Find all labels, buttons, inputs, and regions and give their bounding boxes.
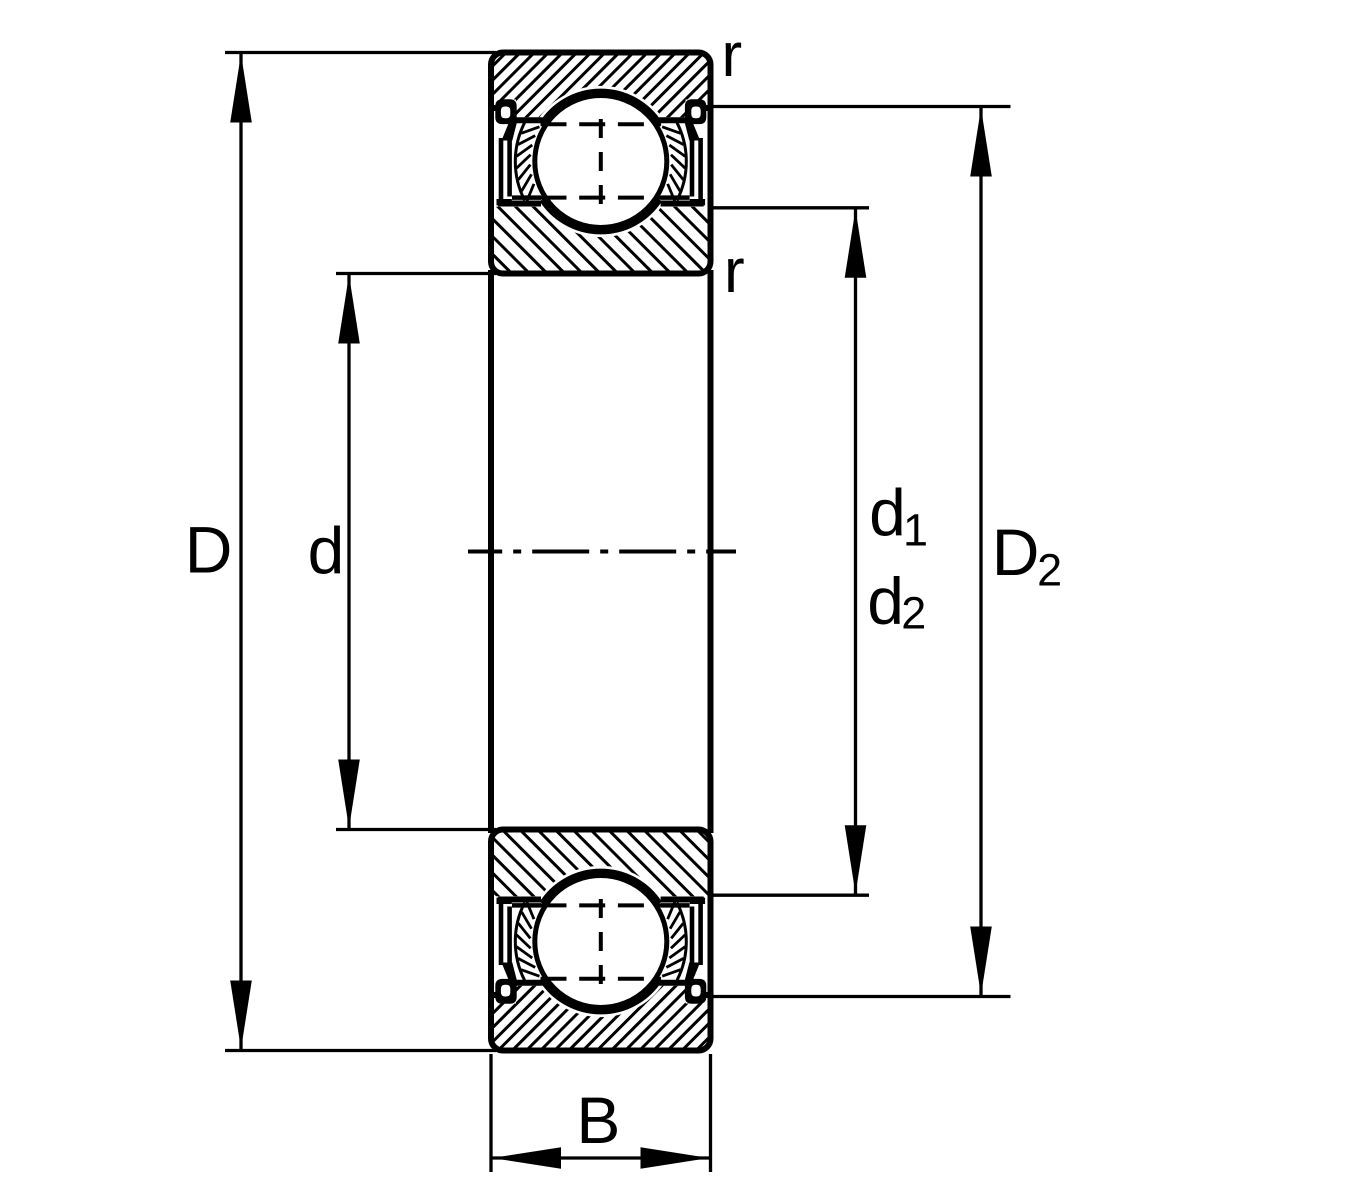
svg-text:d: d — [869, 476, 906, 550]
svg-text:D: D — [992, 515, 1040, 589]
svg-text:d: d — [867, 564, 904, 638]
svg-text:r: r — [724, 237, 745, 306]
svg-text:D: D — [185, 513, 233, 587]
svg-text:d: d — [308, 514, 345, 588]
svg-text:1: 1 — [903, 505, 928, 556]
svg-text:2: 2 — [901, 588, 926, 639]
svg-text:B: B — [576, 1083, 620, 1157]
svg-text:r: r — [722, 21, 743, 90]
svg-text:2: 2 — [1037, 545, 1062, 596]
